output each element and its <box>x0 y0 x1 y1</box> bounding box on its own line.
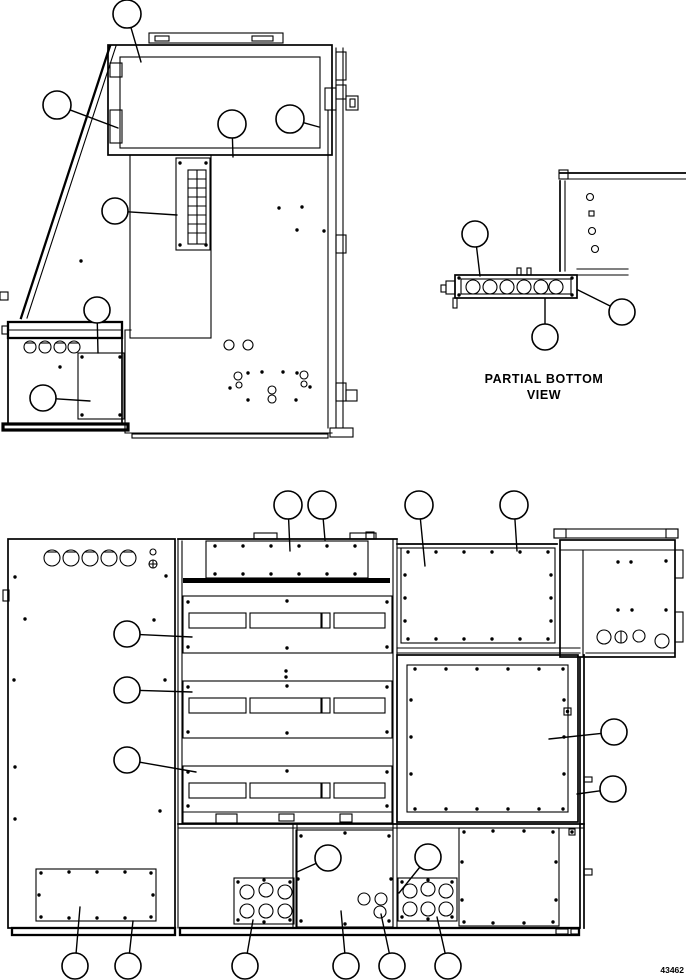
partial-bottom-view-callouts <box>462 221 635 350</box>
figure-number: 43462 <box>660 965 684 975</box>
rear_view-callout-balloon-14 <box>232 953 258 979</box>
partial_bottom_view-leader-1 <box>477 247 480 276</box>
partial-bottom-view-caption-line1: PARTIAL BOTTOM <box>485 372 604 386</box>
top-housing-panel <box>108 45 332 155</box>
side-view <box>0 0 358 438</box>
rear_view-leader-4 <box>515 519 517 551</box>
rear_view-callout-balloon-10 <box>315 845 341 871</box>
rear_view-callout-balloon-13 <box>115 953 141 979</box>
partial-bottom-view: PARTIAL BOTTOM VIEW <box>441 170 686 402</box>
extension-box <box>560 540 675 657</box>
partial_bottom_view-callout-balloon-3 <box>609 299 635 325</box>
rear_view-callout-balloon-3 <box>405 491 433 519</box>
side_view-callout-balloon-6 <box>84 297 110 323</box>
louver-panel <box>176 158 210 250</box>
diagram-canvas: PARTIAL BOTTOM VIEW <box>0 0 686 980</box>
rear_view-callout-balloon-5 <box>114 621 140 647</box>
rear_view-leader-14 <box>247 920 253 953</box>
partial_bottom_view-leader-3 <box>578 290 610 306</box>
rear-foot <box>330 428 353 437</box>
side_view-leader-7 <box>56 399 90 401</box>
rear_view-leader-12 <box>76 907 80 953</box>
rear-view <box>3 491 683 979</box>
front-skid <box>3 424 128 430</box>
rear_view-leader-13 <box>129 921 133 953</box>
partial-bottom-view-caption-line2: VIEW <box>527 388 561 402</box>
side-access-panel <box>78 353 124 419</box>
side-view-callouts <box>30 0 319 411</box>
side_view-leader-4 <box>303 123 319 127</box>
bottom-rail-left <box>12 928 175 935</box>
hinge-block <box>336 52 346 80</box>
side_view-callout-balloon-2 <box>43 91 71 119</box>
rear_view-callout-balloon-15 <box>333 953 359 979</box>
bottom-right-panel <box>459 828 559 926</box>
rear_view-leader-1 <box>289 519 290 551</box>
side_view-leader-6 <box>97 323 98 353</box>
base-channel <box>132 434 328 438</box>
rear_view-callout-balloon-16 <box>379 953 405 979</box>
rear_view-leader-2 <box>323 519 325 540</box>
rear_view-leader-5 <box>140 635 192 637</box>
hinge-pin <box>346 96 358 110</box>
grille-panel-2 <box>183 681 392 738</box>
partial_bottom_view-callout-balloon-1 <box>462 221 488 247</box>
rear_view-leader-10 <box>297 863 316 872</box>
extension-top-rail <box>554 529 678 538</box>
technical-illustration: PARTIAL BOTTOM VIEW <box>0 0 686 980</box>
side_view-callout-balloon-5 <box>102 198 128 224</box>
side_view-callout-balloon-1 <box>113 0 141 28</box>
rear_view-leader-7 <box>140 762 196 772</box>
center-bottom-panel <box>296 830 393 927</box>
rear_view-callout-balloon-11 <box>415 844 441 870</box>
rear_view-leader-6 <box>140 690 192 692</box>
rear_view-callout-balloon-7 <box>114 747 140 773</box>
side_view-callout-balloon-7 <box>30 385 56 411</box>
rear-left-panel <box>8 539 175 928</box>
rear_view-callout-balloon-6 <box>114 677 140 703</box>
sloped-front-edge <box>21 46 110 318</box>
rear_view-leader-3 <box>420 519 425 566</box>
interior-compartment <box>130 155 211 338</box>
side_view-callout-balloon-3 <box>218 110 246 138</box>
rear_view-leader-15 <box>341 911 345 953</box>
rear_view-callout-balloon-9 <box>600 776 626 802</box>
side_view-leader-3 <box>232 138 233 157</box>
rear_view-callout-balloon-4 <box>500 491 528 519</box>
rear_view-callout-balloon-2 <box>308 491 336 519</box>
rear_view-callout-balloon-12 <box>62 953 88 979</box>
partial_bottom_view-callout-balloon-2 <box>532 324 558 350</box>
top-recessed-panel <box>206 541 368 578</box>
rear_view-callout-balloon-17 <box>435 953 461 979</box>
rear_view-leader-8 <box>549 733 601 739</box>
rear_view-callout-balloon-8 <box>601 719 627 745</box>
side_view-callout-balloon-4 <box>276 105 304 133</box>
rear_view-callout-balloon-1 <box>274 491 302 519</box>
rear-view-callouts <box>62 491 627 979</box>
side_view-leader-5 <box>128 212 177 215</box>
rear-access-panel <box>36 869 156 921</box>
grille-panel-1 <box>183 596 392 653</box>
bottom-rail-right <box>180 928 579 935</box>
